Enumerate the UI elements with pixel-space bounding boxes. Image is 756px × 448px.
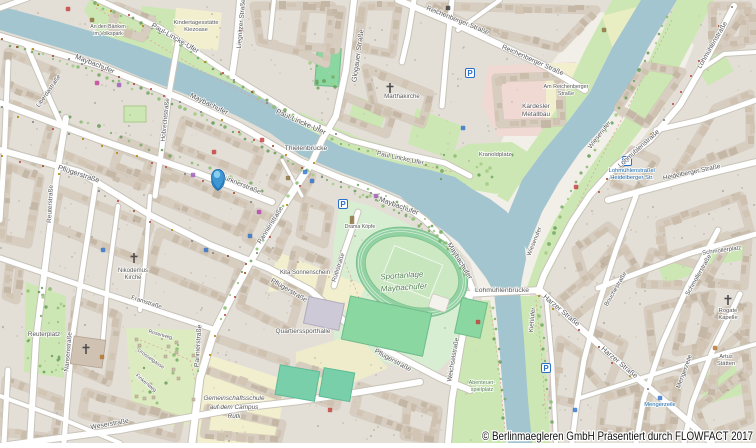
svg-text:Stätten: Stätten	[717, 361, 735, 367]
svg-text:auf dem Campus: auf dem Campus	[210, 404, 259, 411]
svg-text:Metallbau: Metallbau	[522, 111, 551, 118]
svg-text:Kranoldplatz: Kranoldplatz	[479, 152, 511, 158]
svg-text:Rütli: Rütli	[228, 413, 241, 420]
svg-text:Mengerzeile: Mengerzeile	[644, 402, 676, 408]
svg-text:An den Bänken: An den Bänken	[90, 24, 126, 30]
svg-text:Artus: Artus	[719, 354, 733, 360]
svg-text:im Volkspark: im Volkspark	[93, 31, 123, 37]
svg-text:Kapelle: Kapelle	[718, 315, 737, 321]
svg-text:Reuterplatz: Reuterplatz	[28, 331, 60, 338]
svg-text:Am Reichenberger: Am Reichenberger	[544, 84, 589, 90]
svg-text:Kirche: Kirche	[124, 275, 142, 281]
svg-text:Lohmühlenstraße/: Lohmühlenstraße/	[609, 168, 656, 174]
svg-text:Gemeinschaftsschule: Gemeinschaftsschule	[203, 395, 265, 402]
svg-text:Kita Sonnenschein: Kita Sonnenschein	[280, 270, 330, 276]
svg-text:Nikodemus: Nikodemus	[118, 268, 148, 274]
svg-text:Straße: Straße	[558, 91, 574, 97]
svg-text:Abenteuer-: Abenteuer-	[469, 380, 496, 386]
svg-text:Lohmühlenbrücke: Lohmühlenbrücke	[475, 287, 529, 294]
svg-text:Kindertagesstätte: Kindertagesstätte	[173, 20, 218, 26]
svg-text:P: P	[467, 69, 473, 78]
svg-text:spielplatz: spielplatz	[471, 387, 494, 393]
svg-text:Quartierssporthalle: Quartierssporthalle	[276, 328, 331, 335]
svg-text:© Berlinmaegleren GmbH Präsent: © Berlinmaegleren GmbH Präsentiert durch…	[482, 429, 753, 443]
svg-text:P: P	[543, 364, 549, 373]
svg-text:Drama Köpfe: Drama Köpfe	[345, 224, 376, 230]
svg-text:P: P	[340, 200, 346, 209]
svg-text:Kiezoase: Kiezoase	[184, 27, 208, 33]
svg-text:Rogate: Rogate	[719, 308, 738, 314]
svg-text:Kardesler: Kardesler	[522, 103, 551, 110]
svg-text:Heidelberger Str.: Heidelberger Str.	[610, 175, 654, 181]
svg-text:Thielenbrücke: Thielenbrücke	[285, 145, 328, 152]
svg-text:Marthakirche: Marthakirche	[384, 93, 420, 100]
